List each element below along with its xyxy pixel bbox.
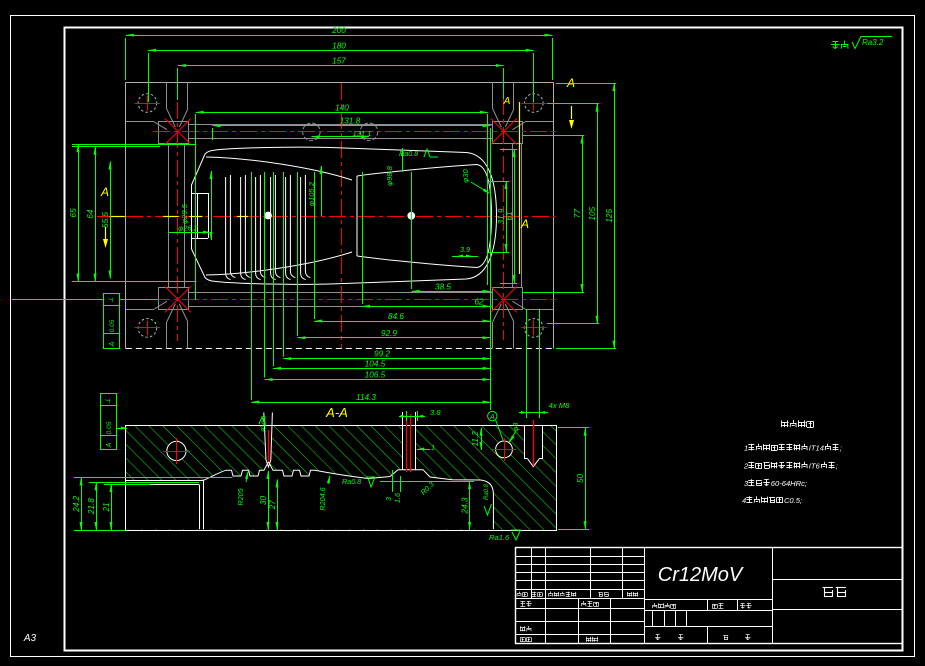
svg-text:⊥: ⊥ (108, 297, 115, 303)
svg-text:131.8: 131.8 (340, 117, 361, 126)
svg-text:92.9: 92.9 (381, 329, 397, 338)
svg-text:φ29.5: φ29.5 (180, 203, 189, 224)
svg-text:38.5: 38.5 (435, 282, 451, 291)
svg-text:125: 125 (605, 209, 614, 223)
svg-text:A: A (566, 76, 575, 90)
svg-text:A: A (109, 341, 116, 347)
svg-text:140: 140 (335, 103, 349, 112)
svg-text:3.9: 3.9 (460, 245, 470, 254)
svg-text:106.5: 106.5 (365, 371, 386, 380)
svg-text:200: 200 (331, 26, 346, 35)
svg-text:Ra0.8: Ra0.8 (484, 483, 490, 500)
svg-text:A: A (489, 414, 495, 421)
svg-text:R204.6: R204.6 (318, 487, 327, 510)
svg-text:157: 157 (332, 57, 346, 66)
svg-text:61: 61 (505, 211, 514, 220)
svg-text:105: 105 (588, 206, 597, 220)
svg-text:Ra0.8: Ra0.8 (342, 477, 361, 486)
svg-text:4: 4 (742, 496, 746, 505)
svg-text:180: 180 (332, 41, 346, 50)
svg-text:A: A (106, 442, 113, 448)
svg-text:77: 77 (573, 209, 582, 219)
svg-text:55.5: 55.5 (101, 212, 110, 228)
svg-text:IT14: IT14 (809, 444, 824, 453)
svg-text:;: ; (840, 444, 842, 453)
svg-text:0.05: 0.05 (109, 319, 116, 332)
svg-text:131.1: 131.1 (352, 129, 371, 138)
svg-text:Cr12MoV: Cr12MoV (658, 564, 744, 586)
svg-text:R205: R205 (236, 487, 245, 505)
svg-text:A-A: A-A (325, 405, 348, 420)
svg-text:1.6: 1.6 (393, 493, 402, 503)
svg-text:50: 50 (576, 473, 585, 483)
svg-text:24.3: 24.3 (461, 497, 470, 514)
svg-text:A: A (520, 217, 529, 231)
svg-text:4x M8: 4x M8 (549, 401, 570, 410)
svg-text:IT6: IT6 (809, 462, 821, 471)
svg-text:1: 1 (744, 444, 748, 453)
svg-text:64: 64 (86, 209, 95, 219)
svg-text:φ8: φ8 (511, 423, 520, 432)
svg-text:φ26.2: φ26.2 (178, 224, 199, 233)
svg-text:104.5: 104.5 (365, 359, 386, 368)
svg-text:21: 21 (102, 502, 111, 512)
svg-text:⊥: ⊥ (105, 398, 112, 404)
svg-text:84.6: 84.6 (388, 312, 404, 321)
svg-text:Ra3.2: Ra3.2 (862, 38, 884, 47)
svg-text:1: 1 (431, 443, 435, 452)
svg-text:3: 3 (384, 497, 393, 501)
svg-text:114.3: 114.3 (356, 393, 376, 402)
svg-text:62: 62 (474, 297, 484, 306)
svg-text:3.8: 3.8 (430, 408, 441, 417)
svg-text:φ98.8: φ98.8 (385, 165, 394, 186)
svg-text:21.8: 21.8 (87, 498, 96, 515)
svg-text:60-64HRc;: 60-64HRc; (771, 479, 807, 488)
svg-text:30: 30 (259, 496, 268, 506)
svg-text:C0.5;: C0.5; (784, 496, 802, 505)
svg-text:11.2: 11.2 (471, 431, 480, 447)
svg-text:A3: A3 (23, 633, 37, 644)
svg-text:Ra0.8: Ra0.8 (399, 149, 418, 158)
svg-text:A: A (503, 96, 511, 107)
svg-text:Ra1.6: Ra1.6 (489, 533, 510, 542)
svg-text:;: ; (836, 462, 838, 471)
svg-text:φ105.2: φ105.2 (307, 181, 316, 206)
svg-text:A: A (100, 185, 109, 199)
svg-text:99.2: 99.2 (374, 350, 390, 359)
svg-text:24.2: 24.2 (72, 495, 81, 512)
svg-text:2: 2 (743, 462, 749, 471)
svg-text:27: 27 (268, 500, 277, 511)
svg-text:0.05: 0.05 (106, 421, 113, 434)
svg-text:φ30: φ30 (461, 169, 470, 183)
svg-text:65: 65 (69, 208, 78, 218)
